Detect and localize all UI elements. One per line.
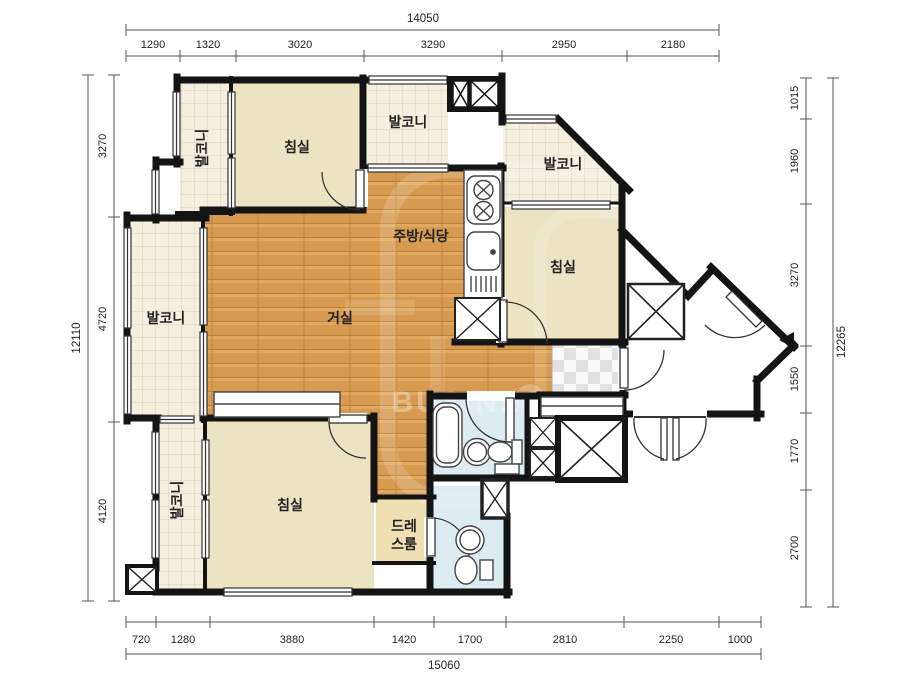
dim-bottom-4: 1700 <box>458 634 482 646</box>
toilet-tank <box>480 560 493 580</box>
floorplan-page: BUSINESS PLATFORM <box>0 0 923 676</box>
room-label-dressroom-1: 드레 <box>391 518 417 534</box>
room-label-bedroom-1: 침실 <box>284 139 310 155</box>
dim-top-5: 2180 <box>661 39 685 51</box>
dim-left-2: 4120 <box>97 499 109 523</box>
toilet-tank <box>512 440 522 464</box>
dim-top-total: 14050 <box>407 13 439 25</box>
dim-right-2: 3270 <box>789 263 801 287</box>
room-label-living: 거실 <box>327 310 353 326</box>
dim-top-2: 3020 <box>288 39 312 51</box>
room-label-balcony-top: 발코니 <box>389 114 428 130</box>
kitchen-faucet <box>491 250 495 254</box>
room-label-bedroom-2: 침실 <box>550 259 576 275</box>
watermark-bar-2 <box>345 300 415 315</box>
room-label-balcony-left: 발코니 <box>147 310 186 326</box>
dim-right-3: 1550 <box>789 367 801 391</box>
room-label-kitchen-dining: 주방/식당 <box>393 228 449 244</box>
dim-bottom-2: 3880 <box>280 634 304 646</box>
dim-bottom-6: 2250 <box>659 634 683 646</box>
bathroom-2-door <box>427 518 435 556</box>
front-door-arc <box>624 350 664 390</box>
dim-right-total: 12265 <box>836 326 848 358</box>
bathroom-1-door <box>506 398 514 442</box>
dim-top-4: 2950 <box>552 39 576 51</box>
sink-inner <box>468 443 487 462</box>
double-door-left-leaf <box>661 418 667 460</box>
room-label-balcony-topright: 발코니 <box>544 156 583 172</box>
double-door-right-leaf <box>673 418 679 460</box>
room-label-balcony-topleft: 발코니 <box>194 129 210 168</box>
dim-left-0: 3270 <box>97 134 109 158</box>
dim-right-5: 2700 <box>789 536 801 560</box>
dim-bottom-7: 1000 <box>728 634 752 646</box>
dim-bottom-3: 1420 <box>392 634 416 646</box>
dim-top-1: 1320 <box>196 39 220 51</box>
closet-under-dressroom <box>375 563 431 592</box>
dim-left-total: 12110 <box>71 322 83 353</box>
dim-right-4: 1770 <box>789 439 801 463</box>
dim-bottom-1: 1280 <box>171 634 195 646</box>
toilet-icon <box>455 556 477 584</box>
room-label-bedroom-3: 침실 <box>277 497 303 513</box>
room-label-dressroom-2: 스룸 <box>391 536 417 552</box>
toilet-icon <box>488 442 512 462</box>
bedroom-1-door <box>356 170 364 208</box>
dim-top-3: 3290 <box>421 39 445 51</box>
dim-bottom-total: 15060 <box>428 660 460 672</box>
dim-left-1: 4720 <box>97 307 109 331</box>
bathtub-inner <box>437 407 459 463</box>
dim-bottom-5: 2810 <box>553 634 577 646</box>
front-door <box>620 348 628 388</box>
bath-shelf <box>495 464 519 474</box>
sink-inner <box>460 530 480 550</box>
room-label-balcony-bottomleft: 발코니 <box>169 481 185 520</box>
dim-right-0: 1015 <box>789 86 801 110</box>
dim-right-1: 1960 <box>789 149 801 173</box>
floorplan-drawing: BUSINESS PLATFORM <box>0 0 923 676</box>
dim-top-0: 1290 <box>141 39 165 51</box>
dim-bottom-0: 720 <box>132 634 150 646</box>
